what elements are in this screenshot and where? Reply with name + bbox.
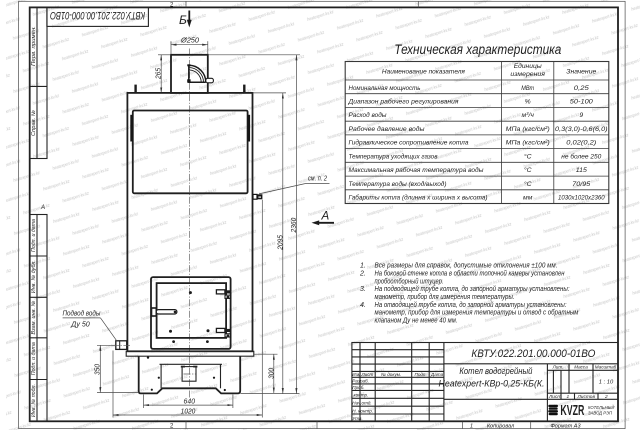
svg-text:350: 350: [95, 364, 102, 375]
svg-text:1 : 10: 1 : 10: [599, 380, 614, 386]
svg-text:Подп. и дата: Подп. и дата: [31, 342, 37, 375]
svg-text:Heatexpert-КВр-0,25-КБ(К.: Heatexpert-КВр-0,25-КБ(К.: [439, 379, 545, 389]
svg-text:2.: 2.: [359, 271, 366, 278]
svg-text:265: 265: [156, 68, 163, 80]
svg-text:мм: мм: [523, 195, 533, 202]
svg-text:Ду 50: Ду 50: [70, 321, 90, 328]
svg-text:контр.: контр.: [354, 393, 369, 398]
svg-text:50-100: 50-100: [570, 99, 593, 106]
svg-text:КВТУ.022.201.00.000-01ВО: КВТУ.022.201.00.000-01ВО: [50, 9, 145, 21]
svg-text:2: 2: [604, 394, 608, 400]
svg-text:9: 9: [579, 112, 583, 119]
svg-text:2095: 2095: [277, 235, 284, 251]
svg-text:0,25: 0,25: [574, 85, 589, 92]
svg-text:На боковой стенке котла в обла: На боковой стенке котла в области топочн…: [375, 270, 565, 278]
svg-text:Перв. примен.: Перв. примен.: [31, 26, 37, 66]
svg-text:640: 640: [184, 399, 196, 406]
svg-text:Б: Б: [179, 13, 187, 27]
svg-text:Лит.: Лит.: [552, 364, 564, 369]
svg-text:Разраб.: Разраб.: [352, 379, 369, 384]
svg-text:манометр, прибор для измерения: манометр, прибор для измерения температу…: [375, 309, 579, 317]
svg-text:Дата: Дата: [430, 372, 444, 377]
svg-text:Номинальная мощность: Номинальная мощность: [349, 85, 421, 92]
svg-text:Наименование показателя: Наименование показателя: [382, 68, 465, 75]
svg-text:Масштаб: Масштаб: [595, 364, 617, 369]
svg-text:Все размеры для справок, допус: Все размеры для справок, допустимые откл…: [375, 262, 558, 270]
svg-text:см. п. 2: см. п. 2: [308, 174, 327, 183]
svg-text:Формат А3: Формат А3: [550, 423, 581, 429]
svg-text:Гидравлическое сопротивление к: Гидравлическое сопротивление котла: [349, 139, 469, 147]
svg-text:4.: 4.: [360, 302, 366, 309]
svg-text:Подп.: Подп.: [415, 372, 427, 377]
svg-text:%: %: [525, 99, 531, 106]
svg-text:Расход воды: Расход воды: [349, 111, 387, 119]
svg-text:№ докум.: № докум.: [381, 372, 401, 377]
svg-text:МВт: МВт: [521, 85, 534, 92]
svg-text:3.: 3.: [360, 286, 366, 293]
svg-text:клапаном Ду не менее 40 мм.: клапаном Ду не менее 40 мм.: [375, 318, 458, 325]
svg-text:0,3(3,0)-0,6(6,0): 0,3(3,0)-0,6(6,0): [555, 126, 608, 133]
svg-text:1030х1020х2360: 1030х1020х2360: [558, 195, 605, 202]
svg-text:°С: °С: [524, 152, 532, 160]
svg-text:пробоотборный штуцер.: пробоотборный штуцер.: [375, 277, 444, 285]
svg-text:°С: °С: [524, 180, 532, 188]
svg-text:Проб.: Проб.: [352, 385, 364, 390]
svg-text:Температура уходящих газов: Температура уходящих газов: [349, 152, 438, 160]
svg-text:Диапазон рабочего регулировани: Диапазон рабочего регулирования: [348, 98, 459, 106]
svg-text:2360: 2360: [291, 218, 298, 234]
svg-text:Инв. № дубл.: Инв. № дубл.: [31, 260, 37, 293]
svg-text:Лист: Лист: [548, 394, 561, 400]
svg-text:1: 1: [567, 394, 570, 400]
svg-text:Котел водогрейный: Котел водогрейный: [459, 366, 532, 376]
svg-text:Техническая характеристика: Техническая характеристика: [394, 42, 561, 57]
svg-text:КВТУ.022.201.00.000-01ВО: КВТУ.022.201.00.000-01ВО: [471, 348, 595, 360]
svg-text:Единицы: Единицы: [514, 62, 542, 70]
svg-text:KVZR: KVZR: [560, 403, 584, 419]
svg-text:Н. контр.: Н. контр.: [352, 408, 373, 413]
svg-text:На отводящей трубе котла, до з: На отводящей трубе котла, до запорной ар…: [375, 301, 567, 309]
svg-text:115: 115: [576, 167, 587, 174]
svg-text:На подводящей трубе котла, до: На подводящей трубе котла, до запорной а…: [375, 285, 570, 293]
svg-text:ЗАВОД РЭП: ЗАВОД РЭП: [588, 411, 613, 416]
svg-text:°С: °С: [524, 166, 532, 174]
svg-text:Температура воды (вход/выход): Температура воды (вход/выход): [349, 180, 447, 188]
svg-text:КОТЕЛЬНЫЙ: КОТЕЛЬНЫЙ: [588, 405, 614, 410]
svg-text:А: А: [40, 205, 45, 211]
svg-text:Значение: Значение: [566, 68, 596, 75]
svg-text:Рабочее давление воды: Рабочее давление воды: [349, 125, 425, 133]
svg-text:Масса: Масса: [574, 364, 588, 369]
svg-text:Инв. № подл.: Инв. № подл.: [31, 384, 37, 417]
svg-text:МПа (кгс/см²): МПа (кгс/см²): [506, 140, 550, 147]
svg-text:300: 300: [268, 368, 275, 379]
svg-text:Утв.: Утв.: [352, 416, 362, 421]
svg-text:0,02(0,2): 0,02(0,2): [566, 140, 596, 147]
svg-text:измерения: измерения: [510, 71, 545, 78]
svg-text:Ø250: Ø250: [180, 35, 200, 44]
svg-text:Нач.отд.: Нач.отд.: [352, 401, 371, 406]
svg-text:Подп. и дата: Подп. и дата: [31, 219, 37, 252]
svg-text:Листов: Листов: [577, 394, 596, 400]
svg-text:70/95: 70/95: [572, 181, 590, 188]
svg-text:Подвод воды: Подвод воды: [63, 310, 102, 318]
svg-text:1020: 1020: [181, 409, 196, 416]
svg-text:А: А: [321, 210, 330, 223]
svg-text:МПа (кгс/см²): МПа (кгс/см²): [506, 126, 550, 133]
svg-text:Лист: Лист: [361, 372, 374, 377]
svg-text:м³/ч: м³/ч: [522, 112, 535, 119]
svg-text:Копировал: Копировал: [487, 423, 514, 429]
svg-text:манометр, прибор для измерения: манометр, прибор для измерения температу…: [375, 293, 515, 301]
svg-text:Габариты котла (длинна х ширин: Габариты котла (длинна х ширина х высота…: [349, 194, 488, 202]
svg-text:Максимальная рабочая температу: Максимальная рабочая температура воды: [349, 166, 484, 174]
svg-text:1.: 1.: [360, 263, 366, 270]
svg-text:не более 250: не более 250: [561, 152, 601, 160]
svg-text:Справ. №: Справ. №: [31, 110, 37, 136]
svg-text:1: 1: [470, 423, 473, 429]
svg-text:Взам. инв. №: Взам. инв. №: [31, 300, 37, 334]
